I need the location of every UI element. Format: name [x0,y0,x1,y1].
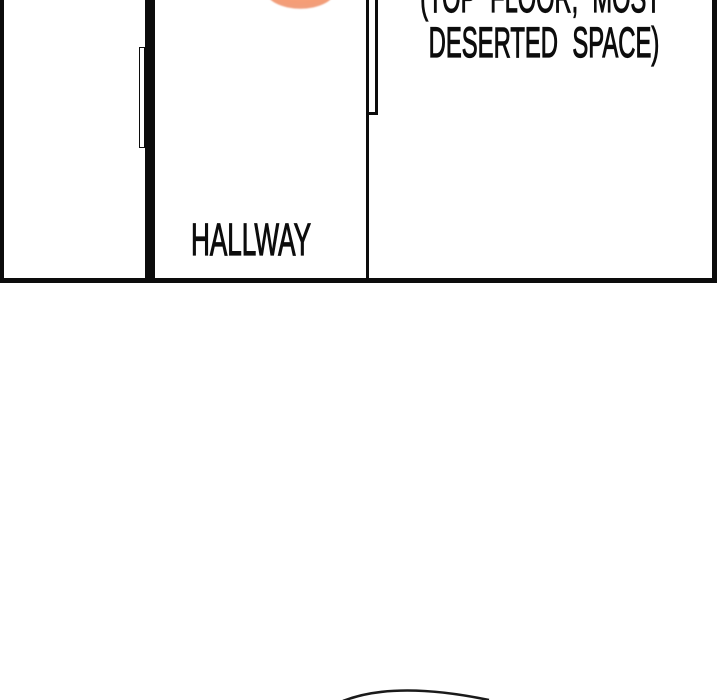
svg-text:HALLWAY: HALLWAY [191,213,311,264]
svg-text:(TOP FLOOR, MOST: (TOP FLOOR, MOST [420,0,660,22]
svg-text:DESERTED SPACE): DESERTED SPACE) [429,20,660,67]
